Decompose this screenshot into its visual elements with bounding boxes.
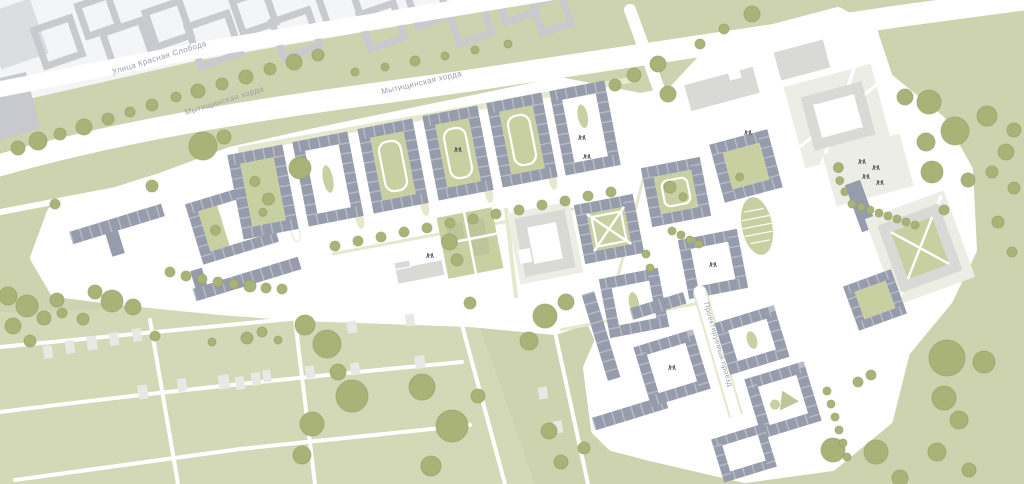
residential-block [717,429,772,477]
residential-block [721,312,782,368]
residential-block [647,163,704,220]
residential-block [580,200,637,257]
residential-block [716,136,776,196]
residential-block [364,125,422,207]
residential-block [493,99,551,181]
residential-block [849,275,901,325]
allotment-field [0,300,535,484]
map-canvas[interactable]: Улица Красная Слобода Мытищинская хорда … [0,0,1024,484]
residential-block [234,151,292,233]
residential-block [640,336,704,400]
residential-block [751,368,815,432]
residential-block [429,112,487,194]
residential-block [299,138,357,220]
masterplan-map: Улица Красная Слобода Мытищинская хорда … [0,0,1024,484]
